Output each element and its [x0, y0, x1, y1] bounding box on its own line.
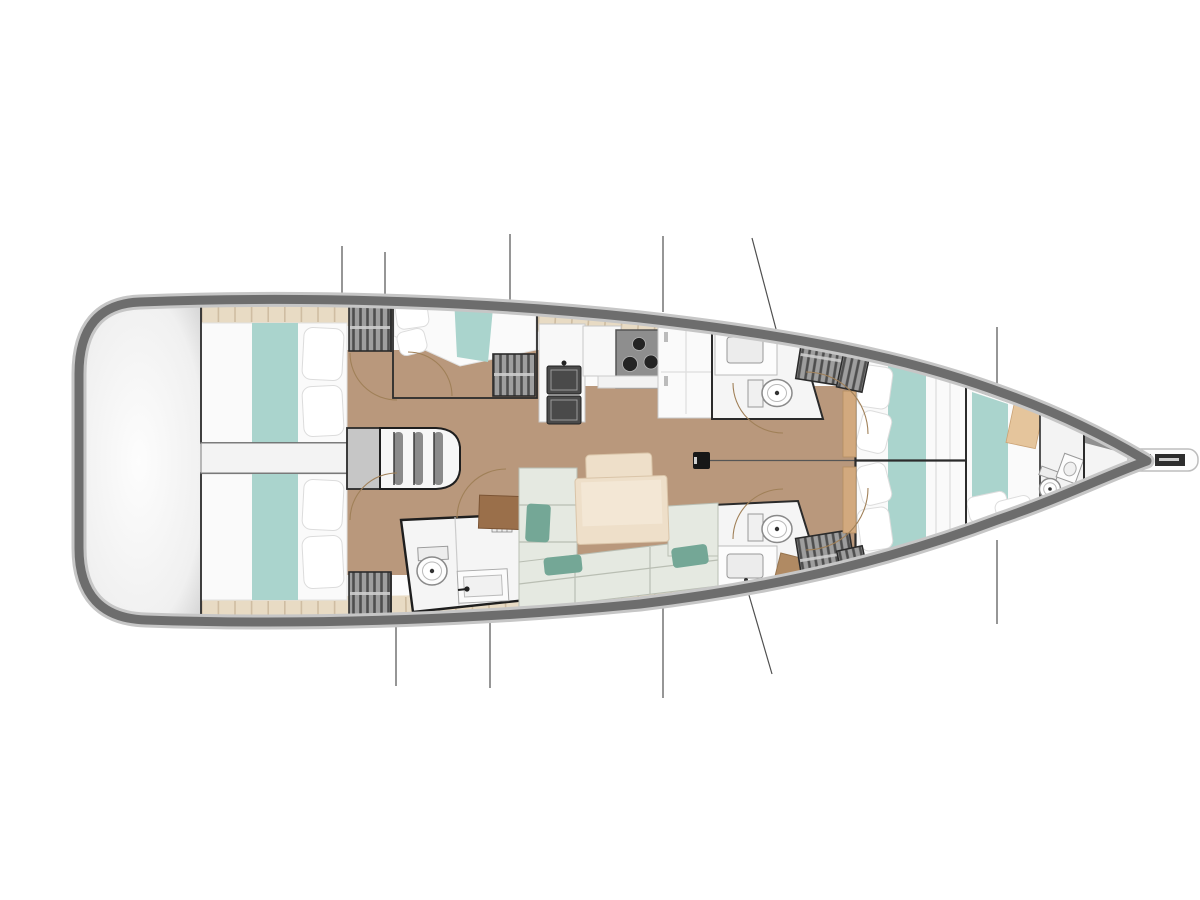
companionway-stairs	[347, 428, 460, 489]
burner	[623, 357, 638, 372]
bed-runner	[888, 352, 926, 566]
pillow	[302, 327, 345, 381]
bath-sink	[464, 575, 503, 597]
yacht-floorplan-canvas	[0, 0, 1200, 900]
pillow	[302, 535, 345, 589]
stair-landing	[347, 428, 380, 489]
bath-sink	[727, 554, 763, 578]
toilet-tank	[748, 380, 763, 407]
toilet-tank	[748, 514, 763, 541]
pillow	[302, 479, 345, 531]
stair-treads	[394, 432, 443, 485]
bed-runner	[252, 323, 298, 443]
fridge-unit	[658, 326, 714, 418]
salon-table	[575, 475, 669, 544]
pillow	[302, 385, 345, 437]
interior-layout	[84, 296, 1143, 620]
faucet	[562, 361, 567, 366]
shelf	[843, 391, 856, 457]
shelf	[843, 467, 856, 533]
stern-passage-bar	[201, 443, 347, 473]
sofa-cushion	[525, 503, 551, 542]
counter-ledge	[598, 376, 662, 388]
mast	[693, 452, 710, 469]
stern-platform	[84, 306, 206, 616]
burner	[633, 338, 646, 351]
floorplan-svg	[0, 0, 1200, 900]
burner	[644, 355, 658, 369]
bed-runner	[252, 474, 298, 600]
